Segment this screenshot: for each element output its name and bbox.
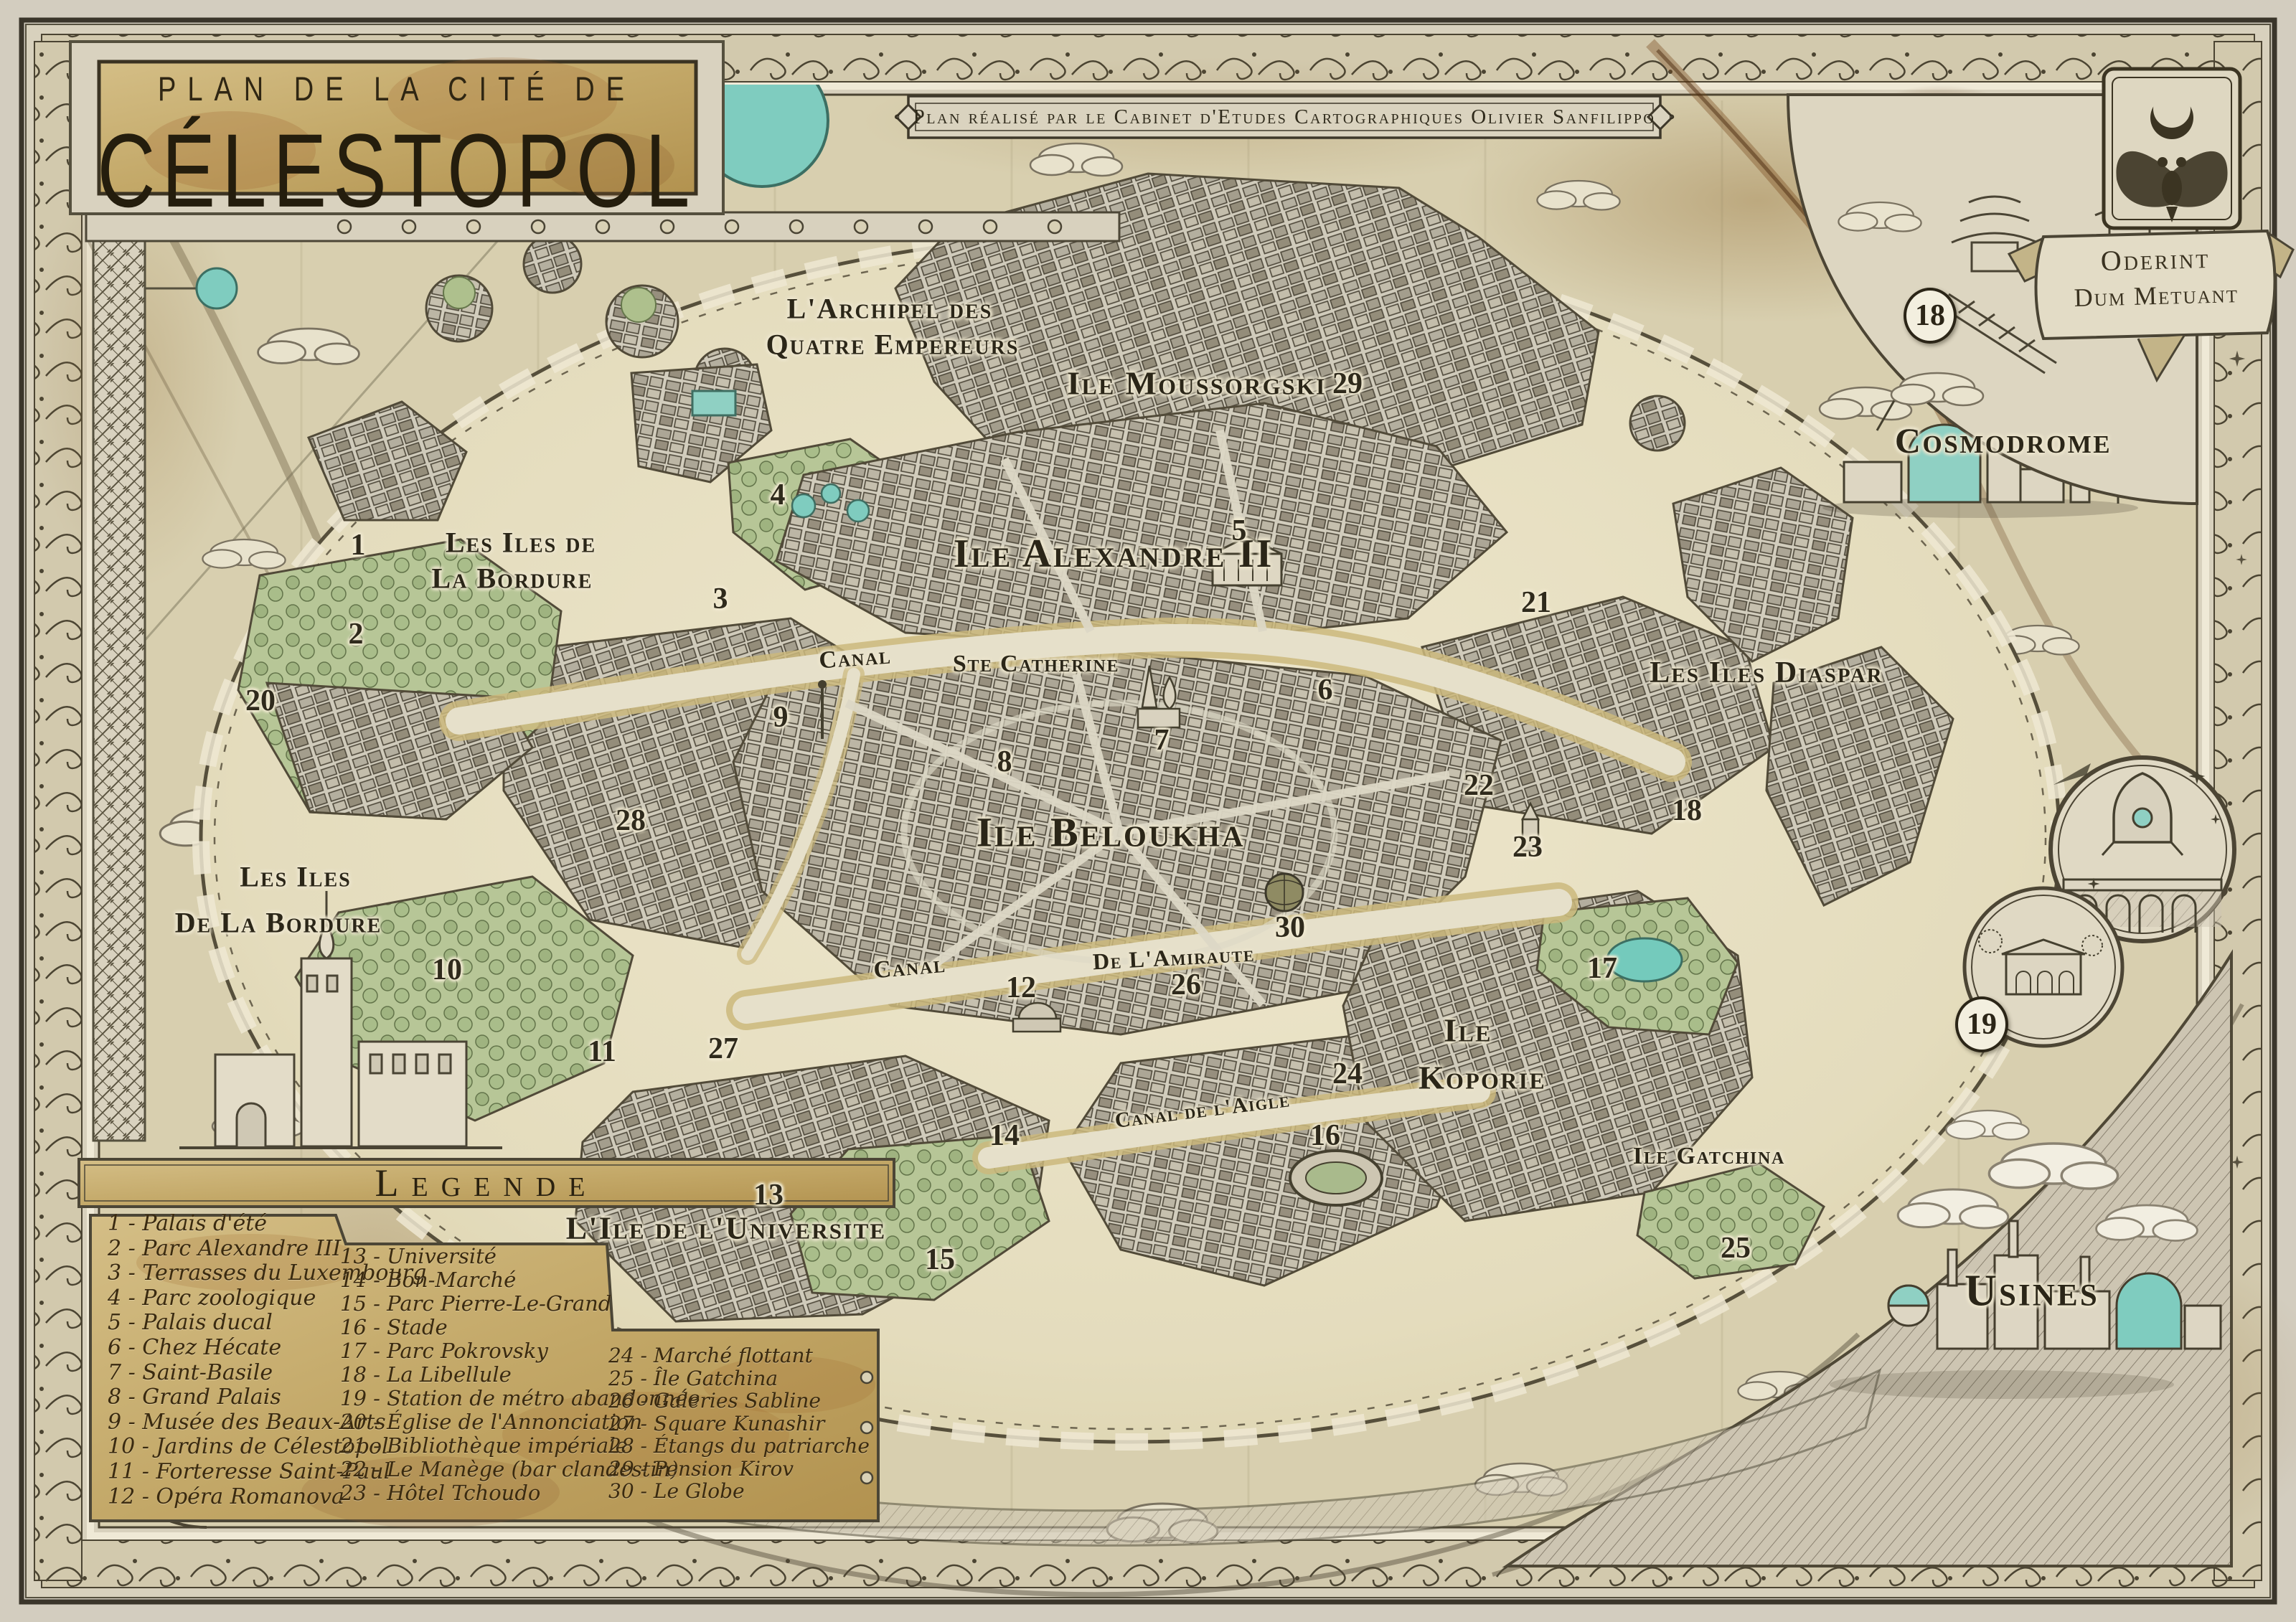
poi-marker-4: 4 <box>771 480 786 510</box>
poi-marker-8: 8 <box>997 747 1012 777</box>
teal-medallion-icon <box>197 268 237 308</box>
legend-item-16: 16 - Stade <box>340 1316 700 1339</box>
legend-item-30: 30 - Le Globe <box>608 1480 870 1503</box>
map-label-moussorgski: Ile Moussorgski <box>1067 364 1327 402</box>
poi-marker-15: 15 <box>925 1245 955 1275</box>
poi-marker-13: 13 <box>753 1180 784 1210</box>
legend-column-3: 24 - Marché flottant25 - Île Gatchina26 … <box>608 1344 870 1503</box>
poi-marker-16: 16 <box>1310 1121 1340 1151</box>
poi-marker-18: 18 <box>1672 796 1702 826</box>
legend-item-15: 15 - Parc Pierre-Le-Grand <box>340 1292 700 1316</box>
map-label-bordure-nord-1: Les Iles de <box>446 526 596 560</box>
legend-item-1: 1 - Palais d'été <box>108 1212 426 1237</box>
poi-marker-5: 5 <box>1232 516 1247 546</box>
map-label-usines: Usines <box>1965 1266 2099 1317</box>
legend-item-24: 24 - Marché flottant <box>608 1344 870 1367</box>
map-label-gatchina: Ile Gatchina <box>1633 1143 1785 1170</box>
poi-marker-20: 20 <box>245 686 276 716</box>
title-kicker: PLAN DE LA CITÉ DE <box>70 71 723 110</box>
poi-marker-2: 2 <box>349 619 364 649</box>
map-label-beloukha: Ile Beloukha <box>977 808 1246 857</box>
legend-item-25: 25 - Île Gatchina <box>608 1367 870 1390</box>
poi-marker-17: 17 <box>1587 953 1617 984</box>
poi-marker-24: 24 <box>1332 1059 1363 1089</box>
map-label-ste-catherine: Ste Catherine <box>953 651 1119 678</box>
legend-item-26: 26 - Galeries Sabline <box>608 1390 870 1413</box>
motto-line-2: Dum Metuant <box>2042 278 2271 313</box>
circled-marker-19: 19 <box>1955 996 2008 1052</box>
poi-marker-3: 3 <box>713 584 728 614</box>
map-label-diaspar: Les Iles Diaspar <box>1650 656 1883 690</box>
legend-item-13: 13 - Université <box>340 1245 700 1268</box>
poi-marker-28: 28 <box>616 806 646 836</box>
braid-column <box>93 108 145 1141</box>
legend-item-29: 29 - Pension Kirov <box>608 1458 870 1481</box>
map-label-alexandre-ii: Ile Alexandre II <box>954 531 1274 577</box>
poi-marker-30: 30 <box>1275 913 1305 943</box>
poi-marker-29: 29 <box>1332 369 1363 399</box>
poi-marker-6: 6 <box>1318 675 1333 705</box>
map-canvas: PLAN DE LA CITÉ DE CÉLESTOPOL ◦ Plan réa… <box>0 0 2296 1622</box>
imperial-crest-icon <box>2104 69 2240 228</box>
poi-marker-1: 1 <box>351 530 366 560</box>
poi-marker-26: 26 <box>1171 970 1201 1000</box>
poi-marker-27: 27 <box>708 1034 738 1064</box>
poi-marker-14: 14 <box>989 1121 1020 1151</box>
poi-marker-7: 7 <box>1154 725 1170 755</box>
page-title: CÉLESTOPOL <box>70 110 723 231</box>
map-label-bordure-nord-2: La Bordure <box>432 562 593 595</box>
map-label-koporie-2: Koporie <box>1418 1059 1546 1097</box>
cartographer-credit: Plan réalisé par le Cabinet d'Etudes Car… <box>913 105 1656 129</box>
map-label-archipel-1: L'Archipel des <box>787 292 993 326</box>
legend-item-27: 27 - Square Kunashir <box>608 1413 870 1435</box>
poi-marker-11: 11 <box>588 1037 616 1067</box>
poi-marker-23: 23 <box>1512 832 1543 862</box>
title-plaque: PLAN DE LA CITÉ DE CÉLESTOPOL <box>70 42 723 214</box>
poi-marker-25: 25 <box>1721 1233 1751 1263</box>
poi-marker-22: 22 <box>1464 770 1494 801</box>
map-label-universite: L'Ile de l'Universite <box>566 1210 887 1247</box>
circled-marker-18: 18 <box>1904 288 1957 344</box>
motto-line-1: Oderint <box>2041 240 2269 279</box>
ornament-dots-right: ◦ <box>1668 106 1675 128</box>
le-globe-icon <box>1266 874 1303 911</box>
poi-marker-10: 10 <box>432 955 462 985</box>
legend-item-14: 14 - Bon-Marché <box>340 1268 700 1292</box>
map-label-archipel-2: Quatre Empereurs <box>766 328 1020 362</box>
subtitle-bar: ◦ Plan réalisé par le Cabinet d'Etudes C… <box>908 96 1660 138</box>
legend-item-28: 28 - Étangs du patriarche <box>608 1435 870 1458</box>
stade-icon <box>1290 1151 1382 1205</box>
poi-marker-12: 12 <box>1006 973 1036 1003</box>
map-label-koporie-1: Ile <box>1444 1012 1492 1050</box>
map-label-bordure-sud-2: De La Bordure <box>175 906 382 940</box>
motto-banner: Oderint Dum Metuant <box>2041 234 2272 340</box>
map-label-canal-nord: Canal <box>818 643 892 675</box>
poi-marker-9: 9 <box>773 702 789 732</box>
map-label-cosmodrome: Cosmodrome <box>1895 420 2112 461</box>
poi-marker-21: 21 <box>1521 588 1551 618</box>
map-label-bordure-sud-1: Les Iles <box>240 860 351 894</box>
ornament-dots-left: ◦ <box>893 106 900 128</box>
